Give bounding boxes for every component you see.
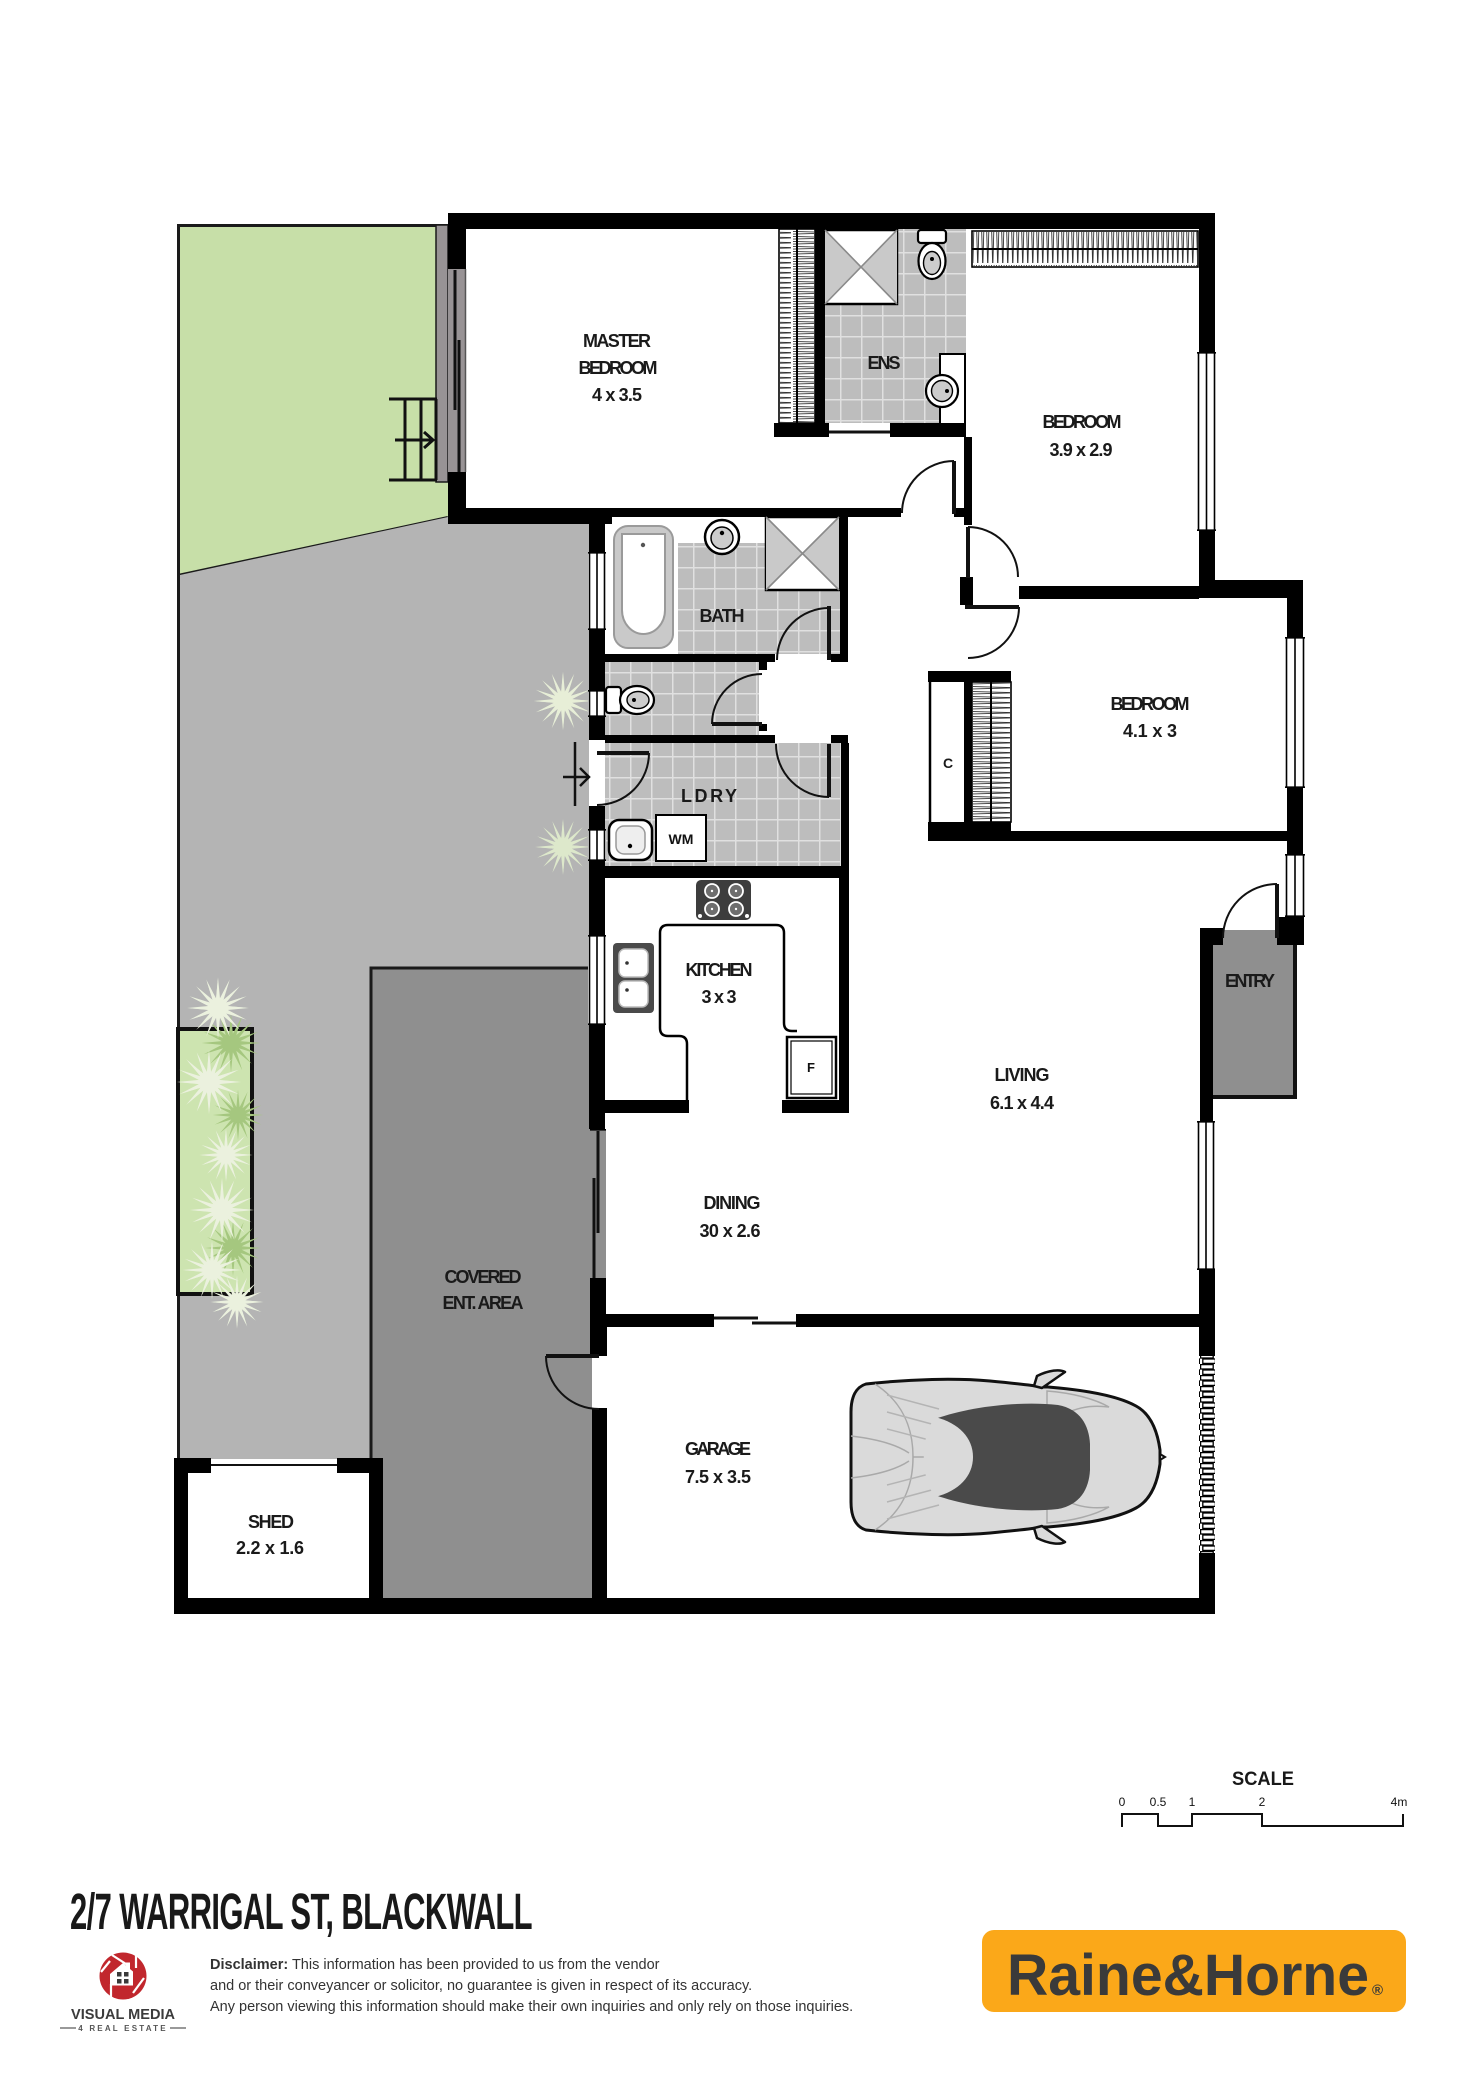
svg-text:4 REAL ESTATE: 4 REAL ESTATE	[78, 2024, 168, 2033]
svg-text:2: 2	[1259, 1795, 1266, 1809]
svg-text:BATH: BATH	[700, 606, 745, 626]
svg-text:2.2 x 1.6: 2.2 x 1.6	[236, 1538, 304, 1558]
svg-text:MASTER: MASTER	[583, 331, 651, 351]
svg-text:ENT. AREA: ENT. AREA	[443, 1293, 524, 1313]
svg-text:2/7 WARRIGAL ST, BLACKWALL: 2/7 WARRIGAL ST, BLACKWALL	[70, 1883, 532, 1940]
svg-text:Raine&Horne: Raine&Horne	[1007, 1943, 1369, 2008]
svg-text:Any person viewing this inform: Any person viewing this information shou…	[210, 1999, 853, 2015]
svg-text:BEDROOM: BEDROOM	[1111, 694, 1190, 714]
svg-text:1: 1	[1189, 1795, 1196, 1809]
svg-text:®: ®	[1372, 1982, 1383, 1999]
svg-text:0.5: 0.5	[1150, 1795, 1167, 1809]
svg-text:BEDROOM: BEDROOM	[1043, 412, 1122, 432]
svg-text:VISUAL MEDIA: VISUAL MEDIA	[71, 2006, 175, 2023]
svg-text:LIVING: LIVING	[995, 1065, 1050, 1085]
svg-text:3.9 x 2.9: 3.9 x 2.9	[1050, 440, 1113, 460]
svg-text:C: C	[943, 755, 953, 771]
svg-text:0: 0	[1119, 1795, 1126, 1809]
svg-text:F: F	[807, 1060, 815, 1075]
svg-text:BEDROOM: BEDROOM	[579, 358, 658, 378]
svg-text:4 x 3.5: 4 x 3.5	[592, 385, 642, 405]
svg-text:30 x 2.6: 30 x 2.6	[700, 1221, 761, 1241]
svg-text:4m: 4m	[1391, 1795, 1408, 1809]
svg-text:WM: WM	[669, 831, 694, 847]
svg-text:3 x 3: 3 x 3	[702, 987, 737, 1007]
svg-text:7.5 x 3.5: 7.5 x 3.5	[685, 1467, 751, 1487]
svg-text:COVERED: COVERED	[445, 1267, 522, 1287]
svg-text:SHED: SHED	[248, 1512, 294, 1532]
svg-text:Disclaimer: This information h: Disclaimer: This information has been pr…	[210, 1957, 660, 1973]
svg-text:4.1 x 3: 4.1 x 3	[1123, 721, 1177, 741]
svg-text:6.1 x 4.4: 6.1 x 4.4	[990, 1093, 1054, 1113]
svg-text:SCALE: SCALE	[1232, 1769, 1294, 1790]
svg-text:and or their conveyancer or so: and or their conveyancer or solicitor, n…	[210, 1978, 752, 1994]
svg-text:GARAGE: GARAGE	[685, 1439, 751, 1459]
svg-text:ENS: ENS	[868, 353, 901, 373]
svg-text:DINING: DINING	[704, 1193, 761, 1213]
svg-text:ENTRY: ENTRY	[1225, 971, 1275, 991]
svg-text:KITCHEN: KITCHEN	[686, 960, 753, 980]
